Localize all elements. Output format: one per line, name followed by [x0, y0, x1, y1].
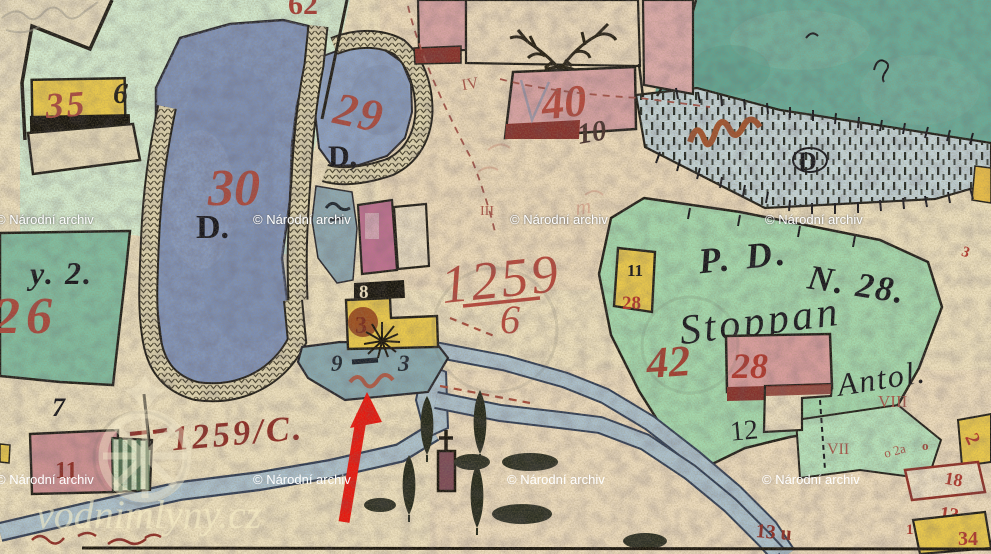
svg-text:vodnimlyny.cz: vodnimlyny.cz: [36, 492, 262, 537]
svg-text:© Národní archiv: © Národní archiv: [507, 472, 605, 487]
svg-text:© Národní archiv: © Národní archiv: [0, 472, 94, 487]
svg-text:© Národní archiv: © Národní archiv: [253, 212, 351, 227]
svg-text:© Národní archiv: © Národní archiv: [765, 212, 863, 227]
svg-text:© Národní archiv: © Národní archiv: [762, 472, 860, 487]
svg-text:© Národní archiv: © Národní archiv: [253, 472, 351, 487]
svg-text:© Národní archiv: © Národní archiv: [510, 212, 608, 227]
svg-text:© Národní archiv: © Národní archiv: [0, 212, 94, 227]
